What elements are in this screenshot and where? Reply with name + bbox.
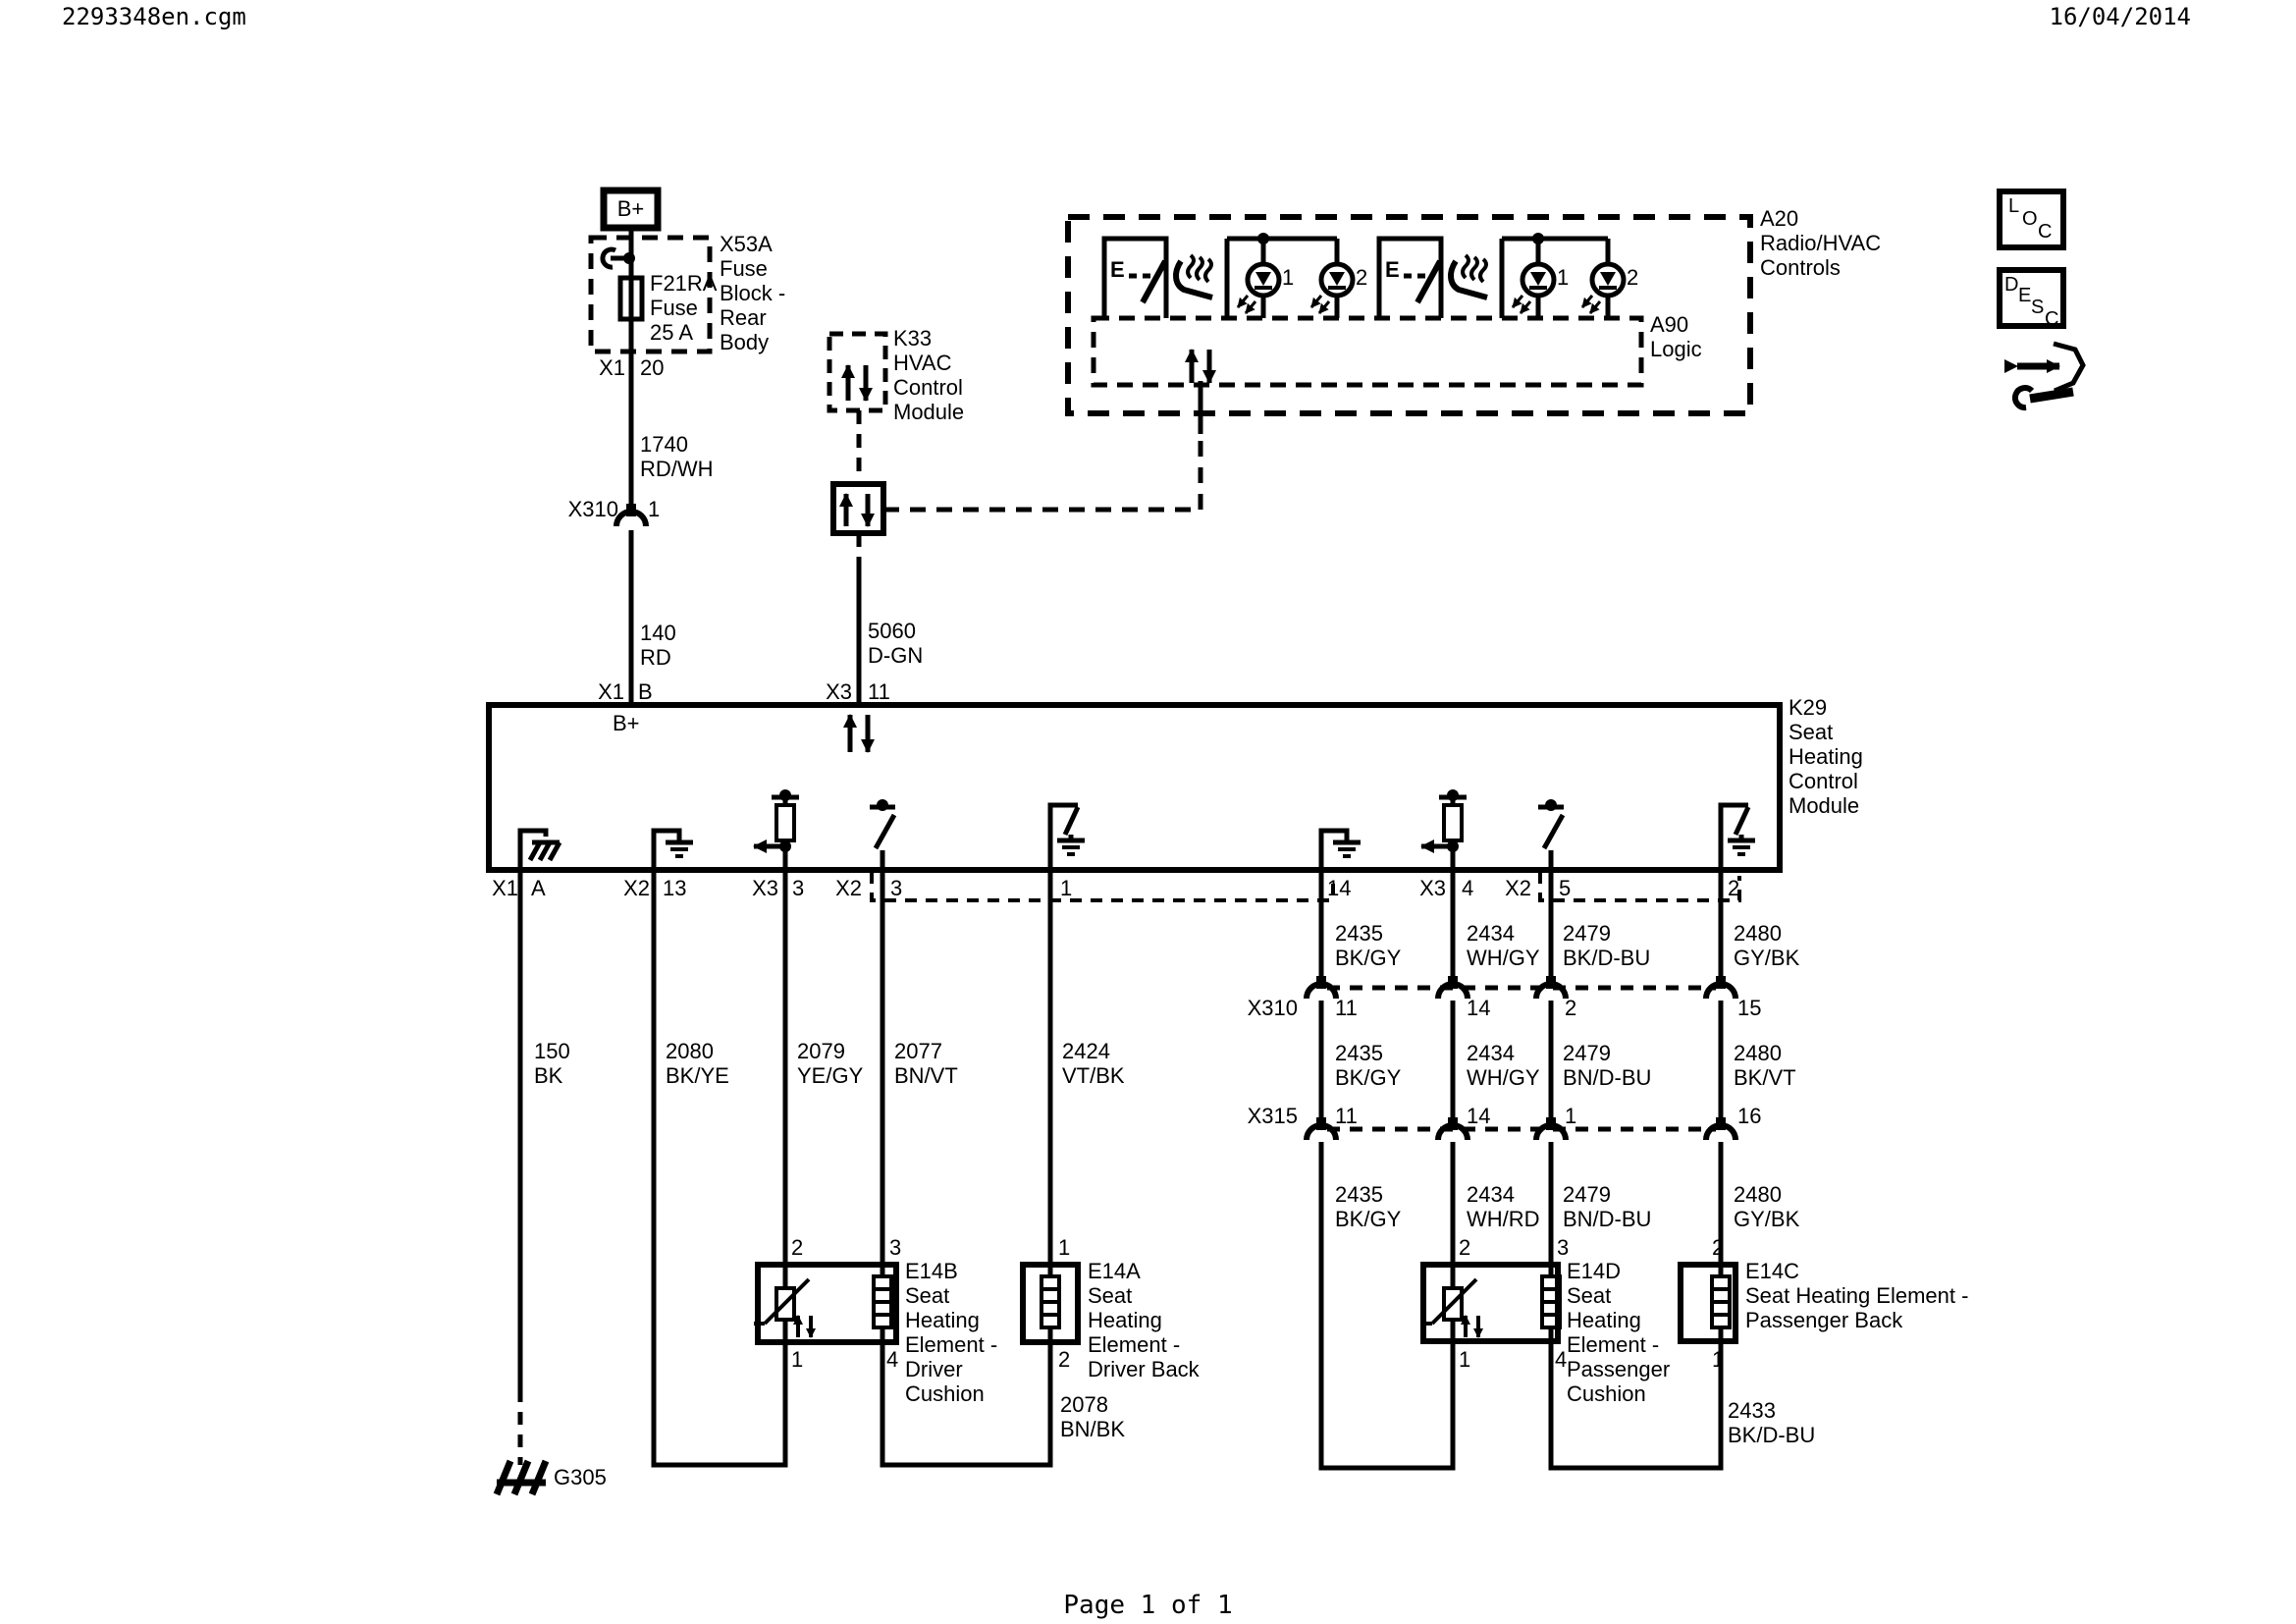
resistor-icon [1444,805,1462,840]
pin-number: 4 [1462,876,1473,900]
connector-pin: 15 [1737,996,1761,1020]
switch-blade-icon [1735,807,1748,835]
led-number: 2 [1627,265,1638,290]
connector-pin: 1 [1565,1104,1576,1128]
k29-boundary [489,705,1780,870]
e14d-element [1421,1265,1560,1341]
k29-pin-b-number: B [638,679,653,704]
inline-connector-x310-icon [616,504,646,526]
routing-wrench-icon[interactable] [2015,344,2083,407]
wire-label: 2480 BK/VT [1734,1041,1796,1090]
element-pin: 2 [791,1235,803,1260]
e14d-label: E14D Seat Heating Element - Passenger Cu… [1567,1259,1670,1406]
pin-link-dashed [872,872,1333,900]
pin-number: 3 [792,876,804,900]
connector-pin: 11 [1335,996,1358,1020]
fuse-pin-number: 20 [640,355,664,380]
pin-number: 14 [1327,876,1351,900]
a90-label: A90 Logic [1650,312,1702,361]
pin-number: 1 [1060,876,1072,900]
pin-connector: X1 [492,876,518,900]
pin-connector: X3 [752,876,778,900]
serial-data-junction [833,484,883,533]
pin-number: 13 [663,876,686,900]
pin-connector: X3 [1419,876,1446,900]
pin-connector: X2 [623,876,650,900]
element-pin: 3 [1557,1235,1569,1260]
k29-seat-heating-control-module [489,705,1780,900]
element-pin: 2 [1712,1235,1724,1260]
pin-number: 2 [1728,876,1739,900]
pin-number: 3 [890,876,902,900]
wire-1740-label: 1740 RD/WH [640,432,714,481]
e14b-label: E14B Seat Heating Element - Driver Cushi… [905,1259,997,1406]
module-sensor-input-driver [754,789,799,870]
wire-label: 2424 VT/BK [1062,1039,1125,1088]
document-date: 16/04/2014 [2050,4,2192,29]
led-icon [1311,264,1353,313]
page-number: Page 1 of 1 [0,1591,2296,1620]
element-pin: 1 [791,1347,803,1372]
element-pin: 3 [889,1235,901,1260]
e14a-label: E14A Seat Heating Element - Driver Back [1088,1259,1200,1381]
a20-label: A20 Radio/HVAC Controls [1760,206,1881,280]
element-pin: 4 [1555,1347,1567,1372]
wiring-diagram-page: 2293348en.cgm 16/04/2014 B+ F21RA Fuse 2… [0,0,2296,1624]
switch-blade-icon [1544,815,1563,848]
wire-label: 2434 WH/GY [1467,1041,1540,1090]
module-switch-output-passenger [1538,799,1564,870]
led-number: 1 [1557,265,1569,290]
wire-label: 2435 BK/GY [1335,1182,1401,1231]
x315-row-label: X315 [1248,1104,1298,1128]
connector-pin: 14 [1467,996,1490,1020]
ground-g305-label: G305 [554,1465,607,1489]
wire-label: 2479 BN/D-BU [1563,1182,1651,1231]
x310-row-label: X310 [1248,996,1298,1020]
wire-label: 2479 BN/D-BU [1563,1041,1651,1090]
switch-blade-icon [876,815,894,848]
connector-pin: 11 [1335,1104,1358,1128]
x310-inline-pin: 1 [648,497,660,521]
pin-connector: X2 [835,876,862,900]
heating-element-icon [1712,1276,1730,1327]
wire-2480 [1706,870,1735,1265]
module-switched-ground-passenger-back [1721,805,1755,870]
switch-blade-icon [1143,261,1165,302]
k29-pin-11-number: 11 [868,679,890,704]
module-output-ground-13 [654,831,693,870]
resistor-icon [776,805,794,840]
led-number: 2 [1356,265,1367,290]
e14c-label: E14C Seat Heating Element - Passenger Ba… [1745,1259,1968,1332]
wire-label: 2435 BK/GY [1335,1041,1401,1090]
wire-5060-label: 5060 D-GN [868,619,923,668]
module-switched-ground-driver-back [1050,805,1085,870]
module-output-ground-driver [520,831,560,870]
a90-logic-boundary [1094,318,1641,385]
ground-g305-icon [497,1461,546,1494]
e14c-element [1681,1265,1735,1341]
module-sensor-input-passenger [1421,789,1467,870]
heating-element-icon [1041,1276,1059,1327]
led-icon [1513,264,1554,313]
loc-letter: O [2022,209,2038,229]
k29-bplus-bus-label: B+ [613,711,640,735]
wire-label: 2079 YE/GY [797,1039,863,1088]
connector-pin: 16 [1737,1104,1761,1128]
element-pin: 2 [1058,1347,1070,1372]
connector-pin: 14 [1467,1104,1490,1128]
wire-2434 [1438,870,1468,1265]
wire-label: 2434 WH/GY [1467,921,1540,970]
wire-label: 2480 GY/BK [1734,921,1799,970]
k33-label: K33 HVAC Control Module [893,326,964,424]
element-pin: 1 [1459,1347,1470,1372]
wire-label: 2479 BK/D-BU [1563,921,1650,970]
battery-label: B+ [604,196,658,221]
loc-letter: L [2008,196,2019,216]
wire-2479 [1536,870,1566,1265]
desc-letter: E [2018,286,2031,305]
fuse-block-label: X53A Fuse Block - Rear Body [720,232,785,354]
pin-number: 5 [1559,876,1571,900]
loc-letter: C [2038,222,2052,242]
desc-letter: S [2031,298,2044,317]
fuse-pin-connector: X1 [599,355,625,380]
wire-label: 150 BK [534,1039,570,1088]
connector-pin: 2 [1565,996,1576,1020]
element-pin: 4 [886,1347,898,1372]
pin-number: A [531,876,546,900]
heating-element-icon [874,1276,891,1327]
desc-letter: D [2004,275,2018,295]
wire-2078-label: 2078 BN/BK [1060,1392,1125,1441]
heated-seat-icon [1451,255,1487,298]
element-pin: 1 [1058,1235,1070,1260]
e14a-element [1023,1265,1078,1342]
wire-2433-label: 2433 BK/D-BU [1728,1398,1815,1447]
switch1-e-label: E [1110,257,1125,282]
a20-radio-hvac-controls [1068,217,1750,413]
led-icon [1582,264,1624,313]
e14b-element [754,1265,896,1342]
k29-pin-b-connector: X1 [598,679,624,704]
fuse-label: F21RA Fuse 25 A [650,271,717,345]
wire-label: 2480 GY/BK [1734,1182,1799,1231]
k33-boundary [829,334,885,410]
led-number: 1 [1282,265,1294,290]
wire-label: 2080 BK/YE [666,1039,729,1088]
module-output-ground-14 [1321,831,1361,870]
k29-label: K29 Seat Heating Control Module [1789,695,1863,818]
pin-connector: X2 [1505,876,1531,900]
heated-seat-icon [1176,255,1212,298]
element-pin: 2 [1459,1235,1470,1260]
wire-label: 2435 BK/GY [1335,921,1401,970]
led-icon [1238,264,1279,313]
document-filename: 2293348en.cgm [62,4,246,29]
element-pin: 1 [1712,1347,1724,1372]
module-switch-output-driver [870,799,895,870]
wire-label: 2077 BN/VT [894,1039,958,1088]
desc-letter: C [2045,309,2058,329]
wire-label: 2434 WH/RD [1467,1182,1540,1231]
switch-blade-icon [1065,807,1078,835]
wire-140-label: 140 RD [640,621,676,670]
switch2-e-label: E [1385,257,1400,282]
switch-blade-icon [1417,261,1440,302]
k29-pin-11-connector: X3 [826,679,852,704]
x310-inline-label: X310 [568,497,618,521]
